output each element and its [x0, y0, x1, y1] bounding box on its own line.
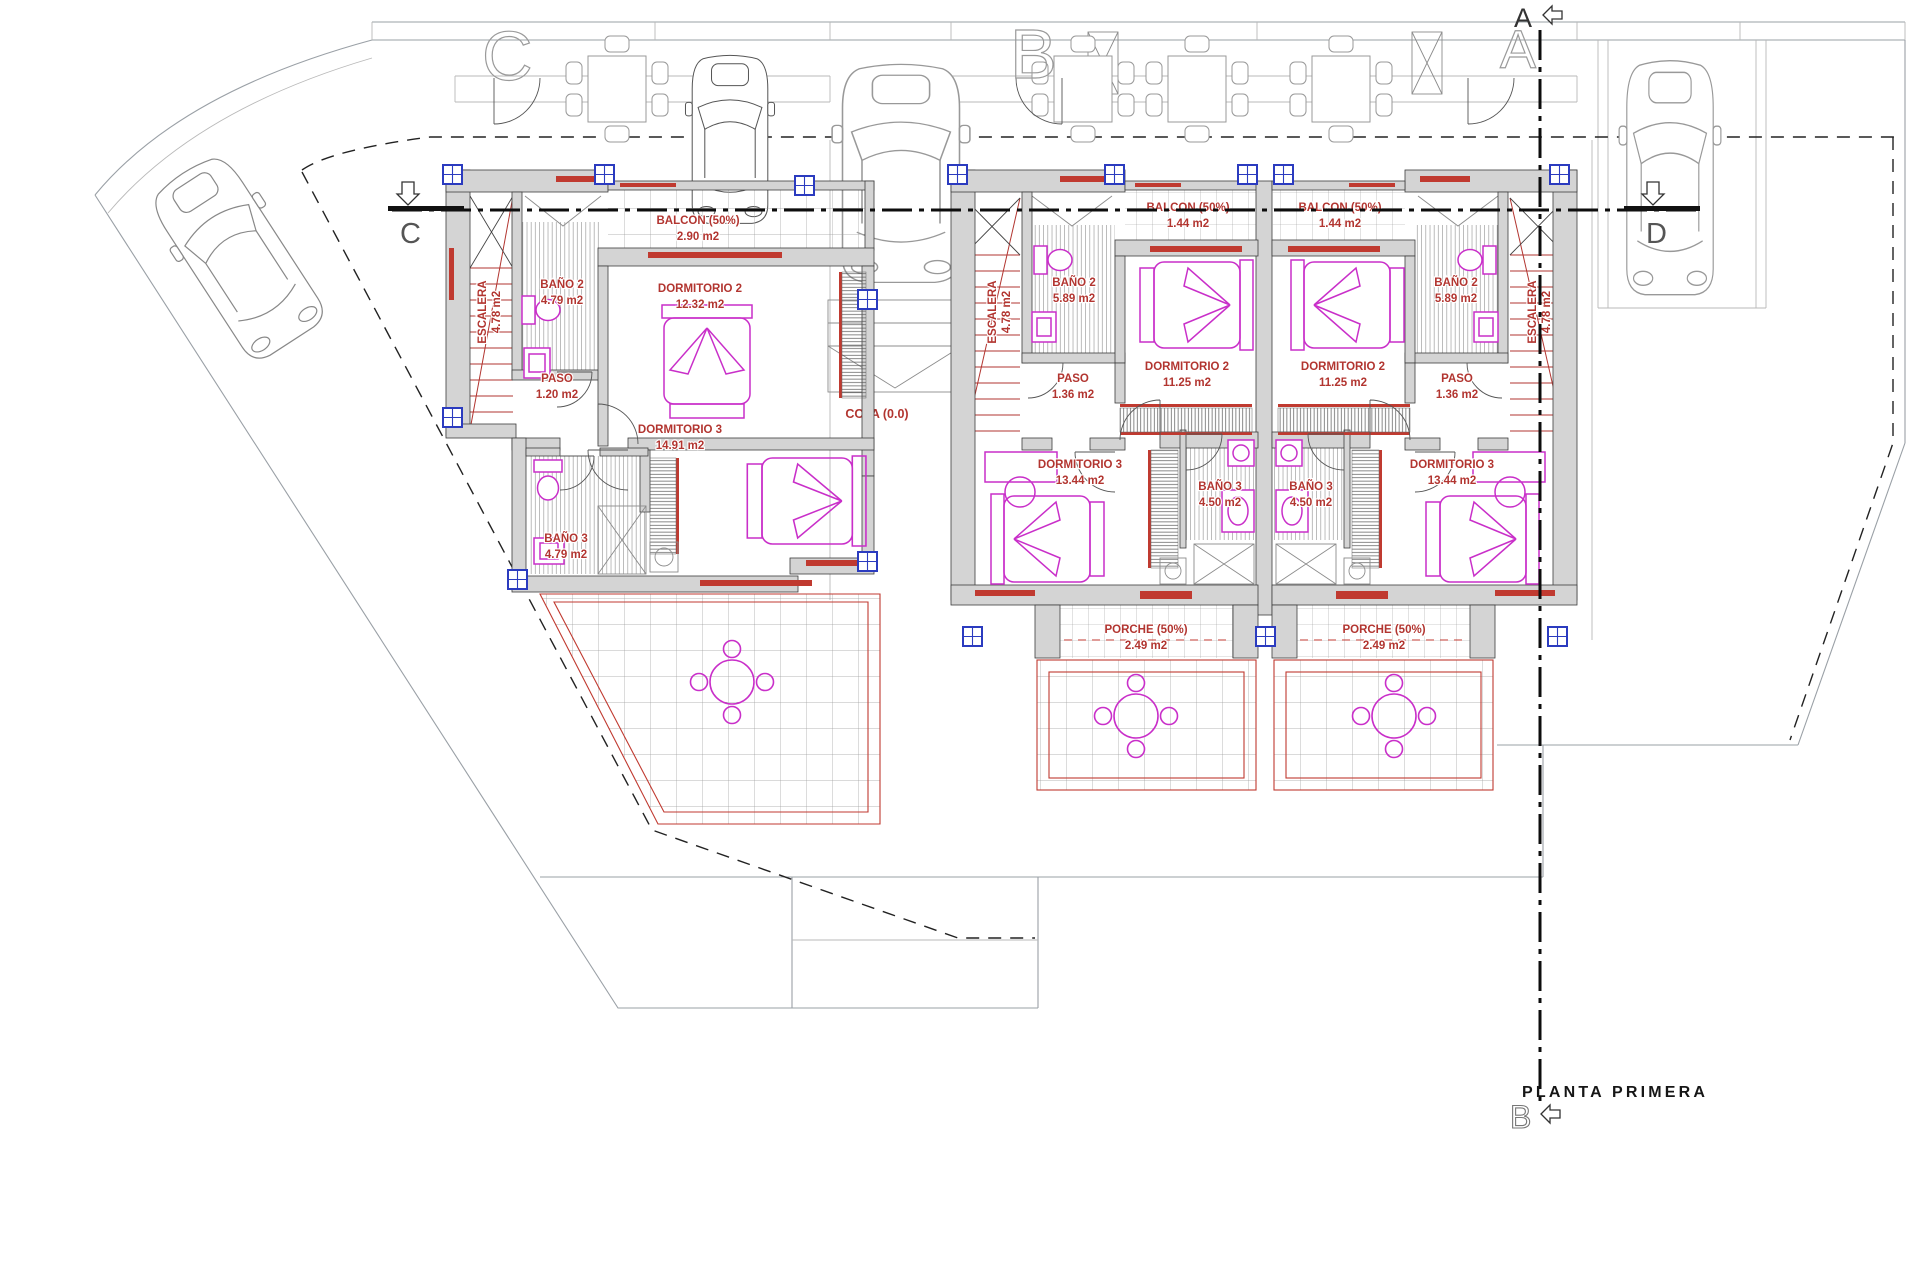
room-area-escalera: 4.78 m2 [1541, 291, 1553, 333]
section-arrow-left-icon [1541, 1105, 1560, 1123]
room-label-dorm3: DORMITORIO 3 [1038, 459, 1122, 471]
car-icon [1619, 61, 1721, 295]
floor-plan-page: COTA (0.0) [0, 0, 1920, 1280]
table-icon [1290, 36, 1392, 142]
room-label-porche: PORCHE (50%) [1342, 624, 1425, 636]
unit-right [1272, 78, 1577, 790]
room-label-balcon: BALCON (50%) [1146, 202, 1229, 214]
sink-icon [1474, 312, 1498, 342]
section-arrow-left-icon [1543, 6, 1562, 24]
room-area-porche: 2.49 m2 [1363, 640, 1405, 652]
room-area-dorm2: 11.25 m2 [1163, 377, 1211, 389]
room-area-bano2: 4.79 m2 [541, 295, 583, 307]
section-marker-d: D [1646, 218, 1667, 250]
room-label-paso: PASO [1441, 373, 1473, 385]
floor-plan-svg: COTA (0.0) [0, 0, 1920, 1280]
room-label-porche: PORCHE (50%) [1104, 624, 1187, 636]
room-area-dorm2: 11.25 m2 [1319, 377, 1367, 389]
room-label-bano3: BAÑO 3 [544, 532, 587, 545]
section-arrow-down-icon [397, 182, 419, 205]
room-area-bano3: 4.50 m2 [1290, 497, 1332, 509]
room-label-paso: PASO [541, 373, 573, 385]
room-area-paso: 1.36 m2 [1052, 389, 1094, 401]
washer-icon [1228, 440, 1254, 466]
room-label-dorm3: DORMITORIO 3 [1410, 459, 1494, 471]
room-area-bano3: 4.50 m2 [1199, 497, 1241, 509]
room-area-dorm3: 14.91 m2 [656, 440, 705, 452]
bed-icon [662, 305, 752, 418]
room-label-dorm2: DORMITORIO 2 [658, 283, 742, 295]
section-marker-b: B [1510, 1099, 1531, 1135]
room-area-escalera: 4.78 m2 [1001, 291, 1013, 333]
room-label-escalera: ESCALERA [987, 280, 999, 343]
room-label-bano3: BAÑO 3 [1289, 480, 1332, 493]
table-icon [1146, 36, 1248, 142]
sink-icon [1032, 312, 1056, 342]
room-label-dorm2: DORMITORIO 2 [1145, 361, 1229, 373]
room-label-bano2: BAÑO 2 [540, 278, 583, 291]
page-title: PLANTA PRIMERA [1522, 1084, 1708, 1101]
room-label-balcon: BALCON (50%) [656, 215, 739, 227]
room-area-balcon: 2.90 m2 [677, 231, 719, 243]
bed-icon [991, 494, 1104, 584]
car-icon [139, 144, 337, 369]
room-area-balcon: 1.44 m2 [1167, 218, 1209, 230]
bed-icon [1140, 260, 1253, 350]
room-label-bano3: BAÑO 3 [1198, 480, 1241, 493]
room-label-bano2: BAÑO 2 [1434, 276, 1477, 289]
room-label-escalera: ESCALERA [1527, 280, 1539, 343]
room-label-balcon: BALCON (50%) [1298, 202, 1381, 214]
unit-letter-b: B [1010, 15, 1057, 93]
room-area-escalera: 4.78 m2 [491, 291, 503, 333]
cota-label: COTA (0.0) [845, 407, 908, 421]
bed-icon [1291, 260, 1404, 350]
room-area-balcon: 1.44 m2 [1319, 218, 1361, 230]
bed-icon [1426, 494, 1539, 584]
room-area-dorm3: 13.44 m2 [1428, 475, 1477, 487]
bed-icon [747, 456, 866, 546]
room-area-bano3: 4.79 m2 [545, 549, 587, 561]
room-area-dorm2: 12.32 m2 [676, 299, 725, 311]
shower-icon [1194, 544, 1254, 584]
room-label-dorm3: DORMITORIO 3 [638, 424, 722, 436]
room-area-porche: 2.49 m2 [1125, 640, 1167, 652]
section-marker-c: C [400, 218, 421, 250]
room-label-bano2: BAÑO 2 [1052, 276, 1095, 289]
room-label-escalera: ESCALERA [477, 280, 489, 343]
room-label-paso: PASO [1057, 373, 1089, 385]
section-marker-a: A [1514, 3, 1532, 33]
room-label-dorm2: DORMITORIO 2 [1301, 361, 1385, 373]
unit-left: ESCALERA 4.78 m2 BAÑO 2 4.79 m2 BALCON (… [443, 78, 880, 824]
room-area-paso: 1.36 m2 [1436, 389, 1478, 401]
washer-icon [1276, 440, 1302, 466]
wardrobe [650, 458, 676, 554]
room-area-bano2: 5.89 m2 [1435, 293, 1477, 305]
dining-tables [566, 36, 1392, 142]
terrace-floor [540, 594, 880, 824]
table-icon [566, 36, 668, 142]
unit-letter-c: C [482, 17, 533, 95]
room-area-dorm3: 13.44 m2 [1056, 475, 1105, 487]
room-area-paso: 1.20 m2 [536, 389, 578, 401]
shower-icon [1276, 544, 1336, 584]
room-area-bano2: 5.89 m2 [1053, 293, 1095, 305]
